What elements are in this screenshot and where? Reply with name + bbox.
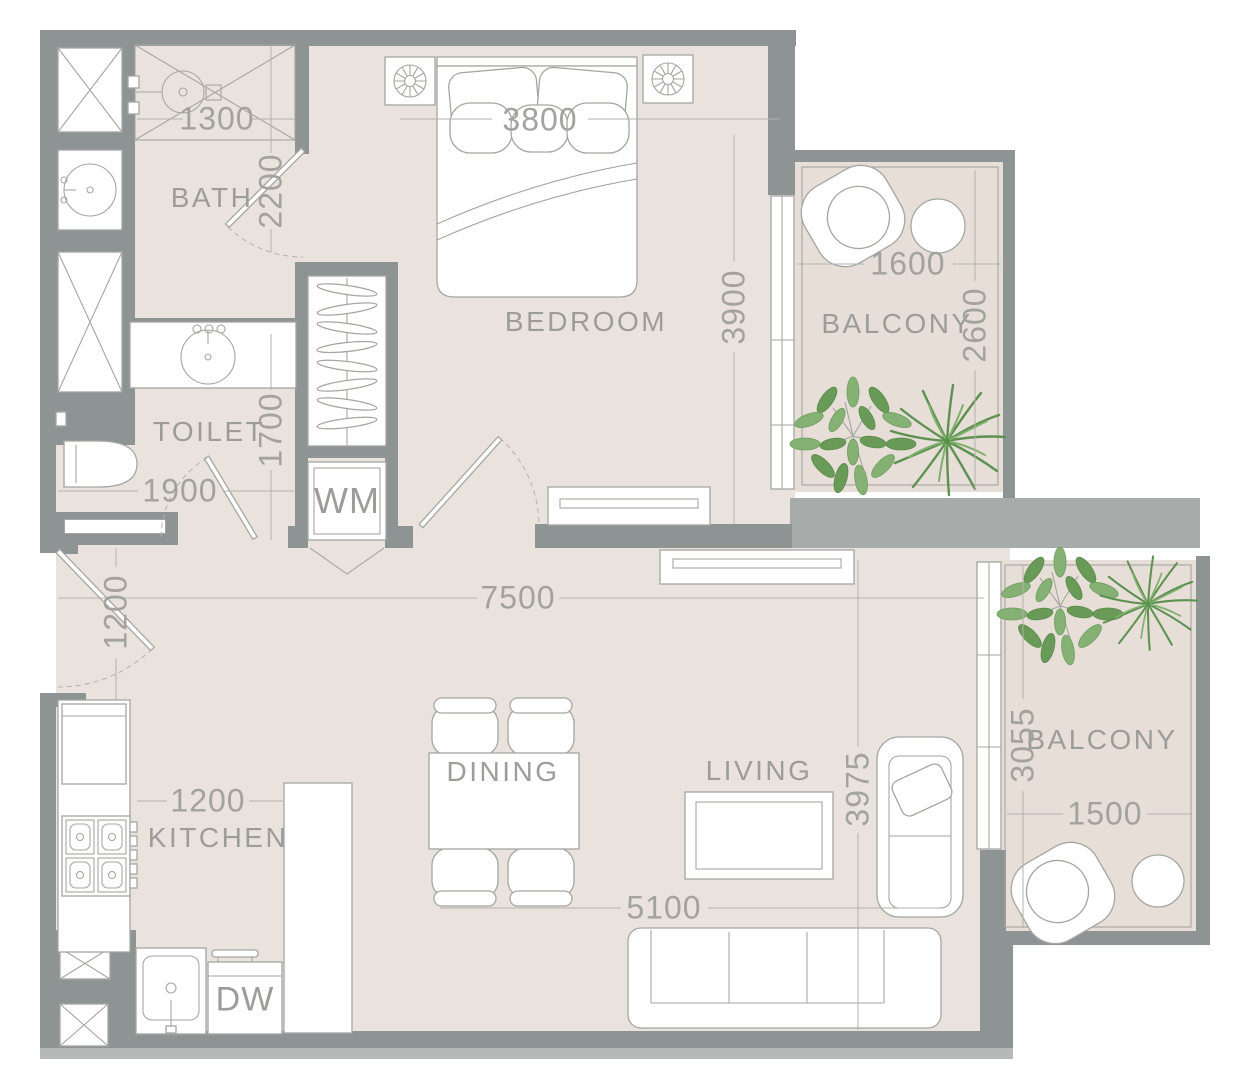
dining-chair <box>508 698 574 756</box>
shaft-box <box>58 252 122 392</box>
plant-palm <box>1100 556 1197 650</box>
wardrobe <box>308 276 386 446</box>
appliance-label-dw: DW <box>216 981 275 1020</box>
room-label-dining: DINING <box>447 756 560 788</box>
bed <box>437 57 637 297</box>
coffee-table <box>685 792 833 879</box>
stove <box>62 816 137 896</box>
room-label-balcony-bottom: BALCONY <box>1026 724 1177 756</box>
sofa <box>628 928 941 1028</box>
shaft-box <box>60 948 110 979</box>
dining-chair <box>432 848 498 906</box>
shaft-box <box>58 48 122 132</box>
living-balcony-glass-door <box>977 562 1001 849</box>
kitchen-sink <box>136 948 206 1034</box>
dim-bath-width: 1300 <box>179 101 254 138</box>
floor-plan: BATH TOILET BEDROOM BALCONY KITCHEN DINI… <box>0 0 1248 1080</box>
room-label-bedroom: BEDROOM <box>505 306 667 338</box>
bedroom-console <box>548 487 710 525</box>
dim-apartment-width: 7500 <box>480 580 555 617</box>
bedroom-door <box>419 437 539 528</box>
room-label-kitchen: KITCHEN <box>148 822 288 854</box>
toilet <box>64 441 137 487</box>
fixtures-overlay <box>0 0 1248 1080</box>
dim-entry-width: 1200 <box>98 574 135 649</box>
ceiling-fan-icon <box>385 57 435 105</box>
kitchen-island <box>284 783 352 1033</box>
dim-living-width: 5100 <box>626 890 701 927</box>
dim-balcony-bottom-width: 1500 <box>1067 796 1142 833</box>
dim-bath-depth: 2200 <box>253 153 290 228</box>
dim-kitchen-width: 1200 <box>170 783 245 820</box>
balcony-chair <box>1000 831 1125 954</box>
dim-living-depth: 3975 <box>840 751 877 826</box>
dim-toilet-width: 1900 <box>142 473 217 510</box>
plant-bush <box>790 377 916 496</box>
balcony-table <box>1132 855 1184 907</box>
room-label-bath: BATH <box>171 182 254 214</box>
living-console <box>660 550 854 584</box>
dim-bedroom-depth: 3900 <box>716 269 753 344</box>
dim-bed-width: 3800 <box>502 102 577 139</box>
dim-balcony-bottom-depth: 3055 <box>1005 707 1042 782</box>
dim-balcony-top-depth: 2600 <box>957 287 994 362</box>
appliance-label-wm: WM <box>314 480 380 522</box>
fridge <box>62 704 126 784</box>
faucet-icon <box>56 412 66 426</box>
shaft-box <box>60 1004 108 1046</box>
ceiling-fan-icon <box>643 55 693 103</box>
armchair <box>877 737 963 917</box>
dim-balcony-top-width: 1600 <box>870 246 945 283</box>
wm-closet-doors <box>310 548 384 574</box>
bath-vanity-sink <box>58 150 122 230</box>
room-label-balcony-top: BALCONY <box>821 308 972 340</box>
dim-toilet-depth: 1700 <box>253 392 290 467</box>
room-label-living: LIVING <box>706 755 813 787</box>
dining-chair <box>508 848 574 906</box>
room-label-toilet: TOILET <box>153 416 266 448</box>
dining-chair <box>432 698 498 756</box>
